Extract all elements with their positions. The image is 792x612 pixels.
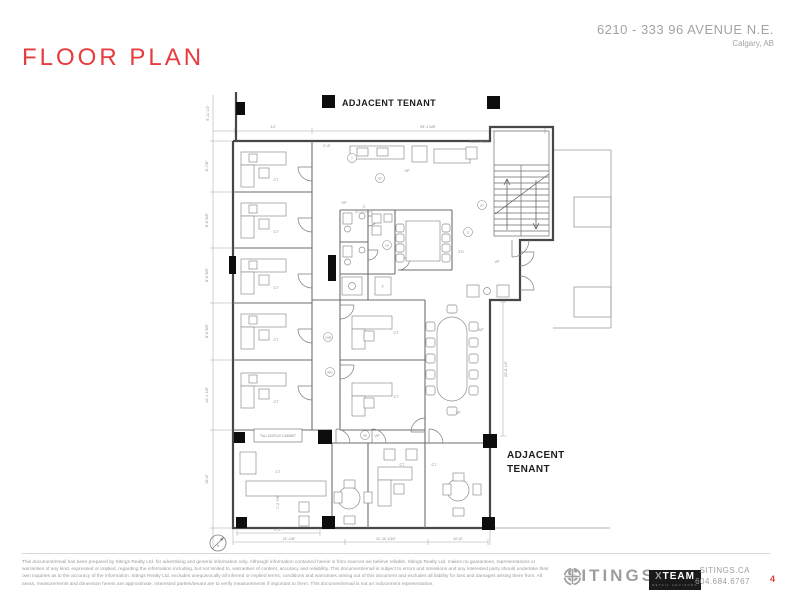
dim-top-c: 2'-6" — [323, 144, 331, 148]
stairwell — [494, 131, 549, 236]
dim-top-a: 14' — [271, 125, 276, 129]
dim-left-1: 8'-7/8" — [205, 160, 209, 171]
legend-square — [322, 95, 335, 108]
xteam-logo: XTEAM RETAIL ADVISORS — [649, 570, 701, 590]
room-code-vp: VP — [455, 411, 461, 415]
website-text: SITINGS.CA — [695, 566, 750, 577]
floor-plan-drawing: ADJACENT TENANT ADJACENT TENANT ELEC PAN… — [0, 0, 792, 612]
adjacent-tenant-right-label-1: ADJACENT — [507, 450, 565, 461]
keynote: AP1 — [327, 370, 333, 374]
room-code-ct: CT — [275, 470, 281, 474]
office-desks-middle — [352, 316, 392, 416]
sitings-logo: SITINGS — [562, 566, 656, 586]
cabinet-label: TALL DISPLAY CABINET — [260, 434, 296, 438]
dim-conf: 2' — [363, 205, 366, 209]
room-code-ct: CT — [273, 286, 279, 290]
room-code-vp: VP — [374, 434, 380, 438]
room-code-vp: VP — [341, 201, 347, 205]
boardroom-table — [426, 305, 478, 415]
dim-right-v: 22'-8 1/4" — [504, 360, 508, 377]
elec-panel-label: ELEC PANEL — [470, 140, 490, 144]
keynote: A7 — [480, 203, 484, 207]
room-code-vp: VP — [404, 169, 410, 173]
page-number: 4 — [770, 574, 775, 584]
room-code-ct: CT — [273, 230, 279, 234]
room-code-ct: CT — [273, 178, 279, 182]
dim-bottom-c: 11'-10 1/16" — [376, 537, 397, 541]
phone-text: 604.684.6767 — [695, 577, 750, 588]
open-office-desks — [240, 452, 326, 526]
north-arrow-icon: N — [210, 535, 226, 551]
dim-bottom-b: 21'-1/8" — [283, 537, 296, 541]
room-code-ct: CT — [399, 463, 405, 467]
room-code-ct: CT — [393, 331, 399, 335]
fridge-tag: F — [382, 285, 384, 289]
dim-top-b: 93'-1 5/8" — [420, 125, 437, 129]
keynote: A6 — [363, 433, 367, 437]
room-code-ct: CT — [273, 400, 279, 404]
dim-left-5: 12'-1 1/8" — [205, 386, 209, 403]
office-desk-bottom — [378, 449, 417, 506]
st1-tag: ST1 — [458, 250, 464, 254]
sitings-logo-icon — [562, 566, 583, 587]
keynote: 1AB — [325, 335, 331, 339]
adjacent-tenant-top-label: ADJACENT TENANT — [342, 98, 436, 108]
dim-left-3: 8'-5 5/8" — [205, 267, 209, 282]
office-desks-left — [241, 152, 286, 408]
washroom-fixtures — [342, 213, 392, 295]
meeting-round-tables — [334, 473, 481, 524]
dim-left-6: 16'-6" — [205, 474, 209, 484]
dim-left-2: 8'-5 5/8" — [205, 212, 209, 227]
room-code-ct: CT — [431, 463, 437, 467]
adjacent-tenant-right-label-2: TENANT — [507, 464, 550, 475]
dim-top-height: 9'-11 1/2" — [206, 104, 210, 120]
flyer-page: FLOOR PLAN 6210 - 333 96 AVENUE N.E. Cal… — [0, 0, 792, 612]
dim-left-4: 8'-5 5/8" — [205, 323, 209, 338]
keynote: 1A — [385, 243, 389, 247]
xteam-tagline: RETAIL ADVISORS — [649, 583, 701, 588]
room-code-ct: CT — [273, 338, 279, 342]
xteam-logo-text: XTEAM — [649, 570, 701, 583]
dim-bottom-a: 9'-2" — [274, 528, 282, 532]
north-label: N — [217, 544, 220, 548]
room-code-ct: CT — [393, 395, 399, 399]
door-swings — [298, 167, 534, 443]
conference-table — [396, 221, 450, 262]
disclaimer-text: This document/email has been prepared by… — [22, 559, 550, 588]
copy-area — [350, 146, 477, 163]
dim-desk: 7'-2 7/8" — [276, 494, 280, 509]
footer-divider — [22, 553, 770, 554]
reception-seating — [467, 285, 509, 297]
dim-bottom-d: 10'-8" — [453, 537, 463, 541]
keynote: A7 — [378, 176, 382, 180]
room-code-wt: WT — [478, 328, 485, 332]
room-code-vp: VP — [494, 260, 500, 264]
plan-labels: ADJACENT TENANT ADJACENT TENANT ELEC PAN… — [254, 95, 565, 475]
contact-block: SITINGS.CA 604.684.6767 — [695, 566, 750, 588]
furniture — [240, 146, 509, 526]
